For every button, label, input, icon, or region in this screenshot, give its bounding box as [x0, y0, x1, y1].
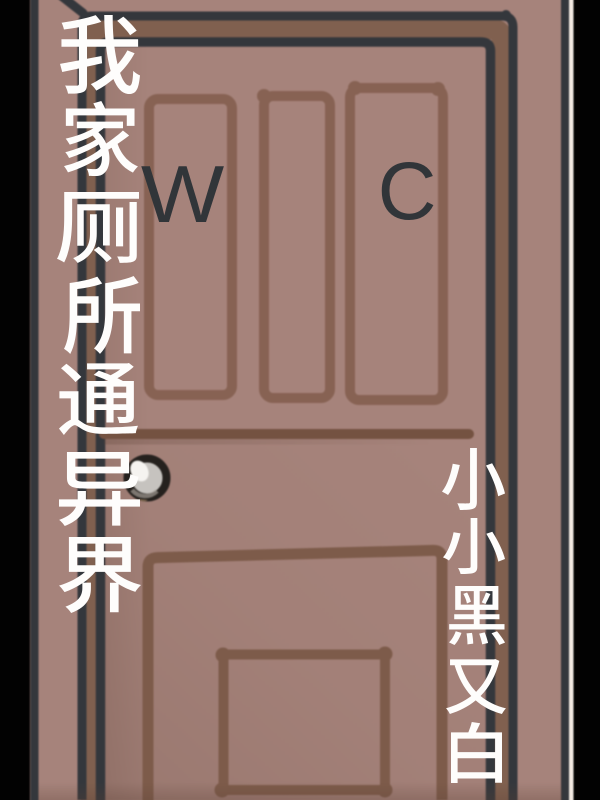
svg-text:C: C: [378, 146, 437, 237]
svg-text:W: W: [141, 148, 224, 239]
